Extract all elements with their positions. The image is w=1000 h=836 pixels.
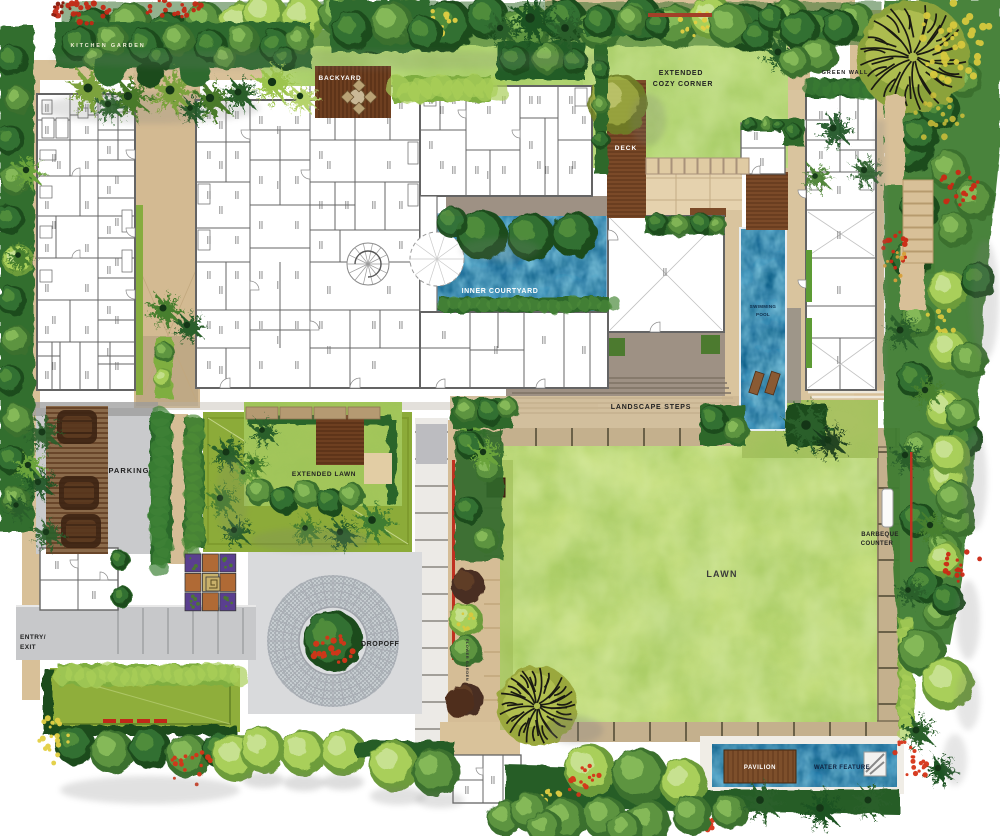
svg-text:FLOWER GARDEN: FLOWER GARDEN bbox=[465, 639, 470, 681]
svg-text:DECK: DECK bbox=[615, 145, 637, 152]
svg-text:INNER COURTYARD: INNER COURTYARD bbox=[462, 288, 539, 295]
svg-text:WATER FEATURE: WATER FEATURE bbox=[814, 765, 870, 771]
svg-text:EXIT: EXIT bbox=[20, 644, 36, 651]
svg-text:ENTRY/: ENTRY/ bbox=[20, 634, 46, 641]
svg-text:LANDSCAPE STEPS: LANDSCAPE STEPS bbox=[611, 404, 691, 411]
svg-text:GREEN WALL: GREEN WALL bbox=[822, 70, 869, 76]
svg-text:EXTENDED: EXTENDED bbox=[659, 70, 704, 77]
svg-text:PARKING: PARKING bbox=[108, 466, 149, 475]
svg-text:COZY CORNER: COZY CORNER bbox=[653, 81, 713, 88]
svg-text:COUNTER: COUNTER bbox=[861, 541, 894, 547]
svg-text:SWIMMING: SWIMMING bbox=[750, 304, 777, 309]
svg-text:POOL: POOL bbox=[756, 312, 770, 317]
svg-text:KITCHEN GARDEN: KITCHEN GARDEN bbox=[70, 43, 145, 49]
svg-text:LAWN: LAWN bbox=[706, 569, 737, 579]
svg-text:EXTENDED LAWN: EXTENDED LAWN bbox=[292, 471, 356, 478]
svg-text:DROPOFF: DROPOFF bbox=[361, 641, 400, 648]
svg-text:BARBEQUE: BARBEQUE bbox=[861, 532, 899, 538]
svg-text:PAVILION: PAVILION bbox=[744, 765, 776, 771]
svg-text:BACKYARD: BACKYARD bbox=[319, 75, 362, 82]
